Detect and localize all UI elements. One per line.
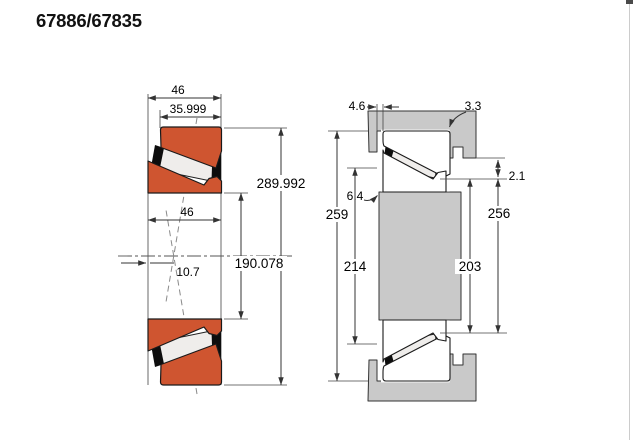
svg-text:289.992: 289.992	[257, 176, 306, 191]
mounting-figure: 4.6 3.3 6.4 259	[322, 99, 526, 401]
dim-housing-shoulder-diameter: 256	[483, 179, 515, 333]
bearing-drawings: 46 35.999 289.992 190.078	[0, 0, 640, 440]
bearing-section-figure: 46 35.999 289.992 190.078	[118, 83, 311, 394]
svg-text:10.7: 10.7	[176, 265, 200, 279]
svg-text:214: 214	[344, 259, 367, 274]
dim-cup-width: 35.999	[160, 102, 221, 117]
svg-text:4.6: 4.6	[349, 99, 366, 113]
svg-text:35.999: 35.999	[170, 102, 207, 116]
mounted-bearing-bottom	[381, 320, 450, 382]
dim-inner-width: 46	[148, 205, 221, 220]
dim-load-center-offset: 10.7	[121, 263, 200, 279]
svg-text:256: 256	[488, 206, 511, 221]
shaft	[379, 192, 461, 320]
svg-text:46: 46	[171, 83, 185, 97]
svg-text:203: 203	[459, 259, 482, 274]
svg-text:190.078: 190.078	[235, 256, 284, 271]
svg-text:2.1: 2.1	[509, 169, 526, 183]
dim-bore-diameter: 190.078	[224, 193, 287, 319]
dim-shaft-fillet: 6.4	[347, 189, 378, 203]
svg-text:3.3: 3.3	[465, 99, 482, 113]
bearing-bottom-half	[148, 210, 222, 394]
mounted-bearing-top	[381, 130, 450, 192]
dim-overall-width: 46	[148, 83, 221, 98]
svg-text:46: 46	[180, 205, 194, 219]
dim-cup-standout: 2.1	[498, 160, 526, 183]
catalog-page: 67886/67835	[0, 0, 640, 440]
dim-cup-backing-diameter: 259	[322, 131, 369, 381]
svg-text:259: 259	[326, 207, 349, 222]
